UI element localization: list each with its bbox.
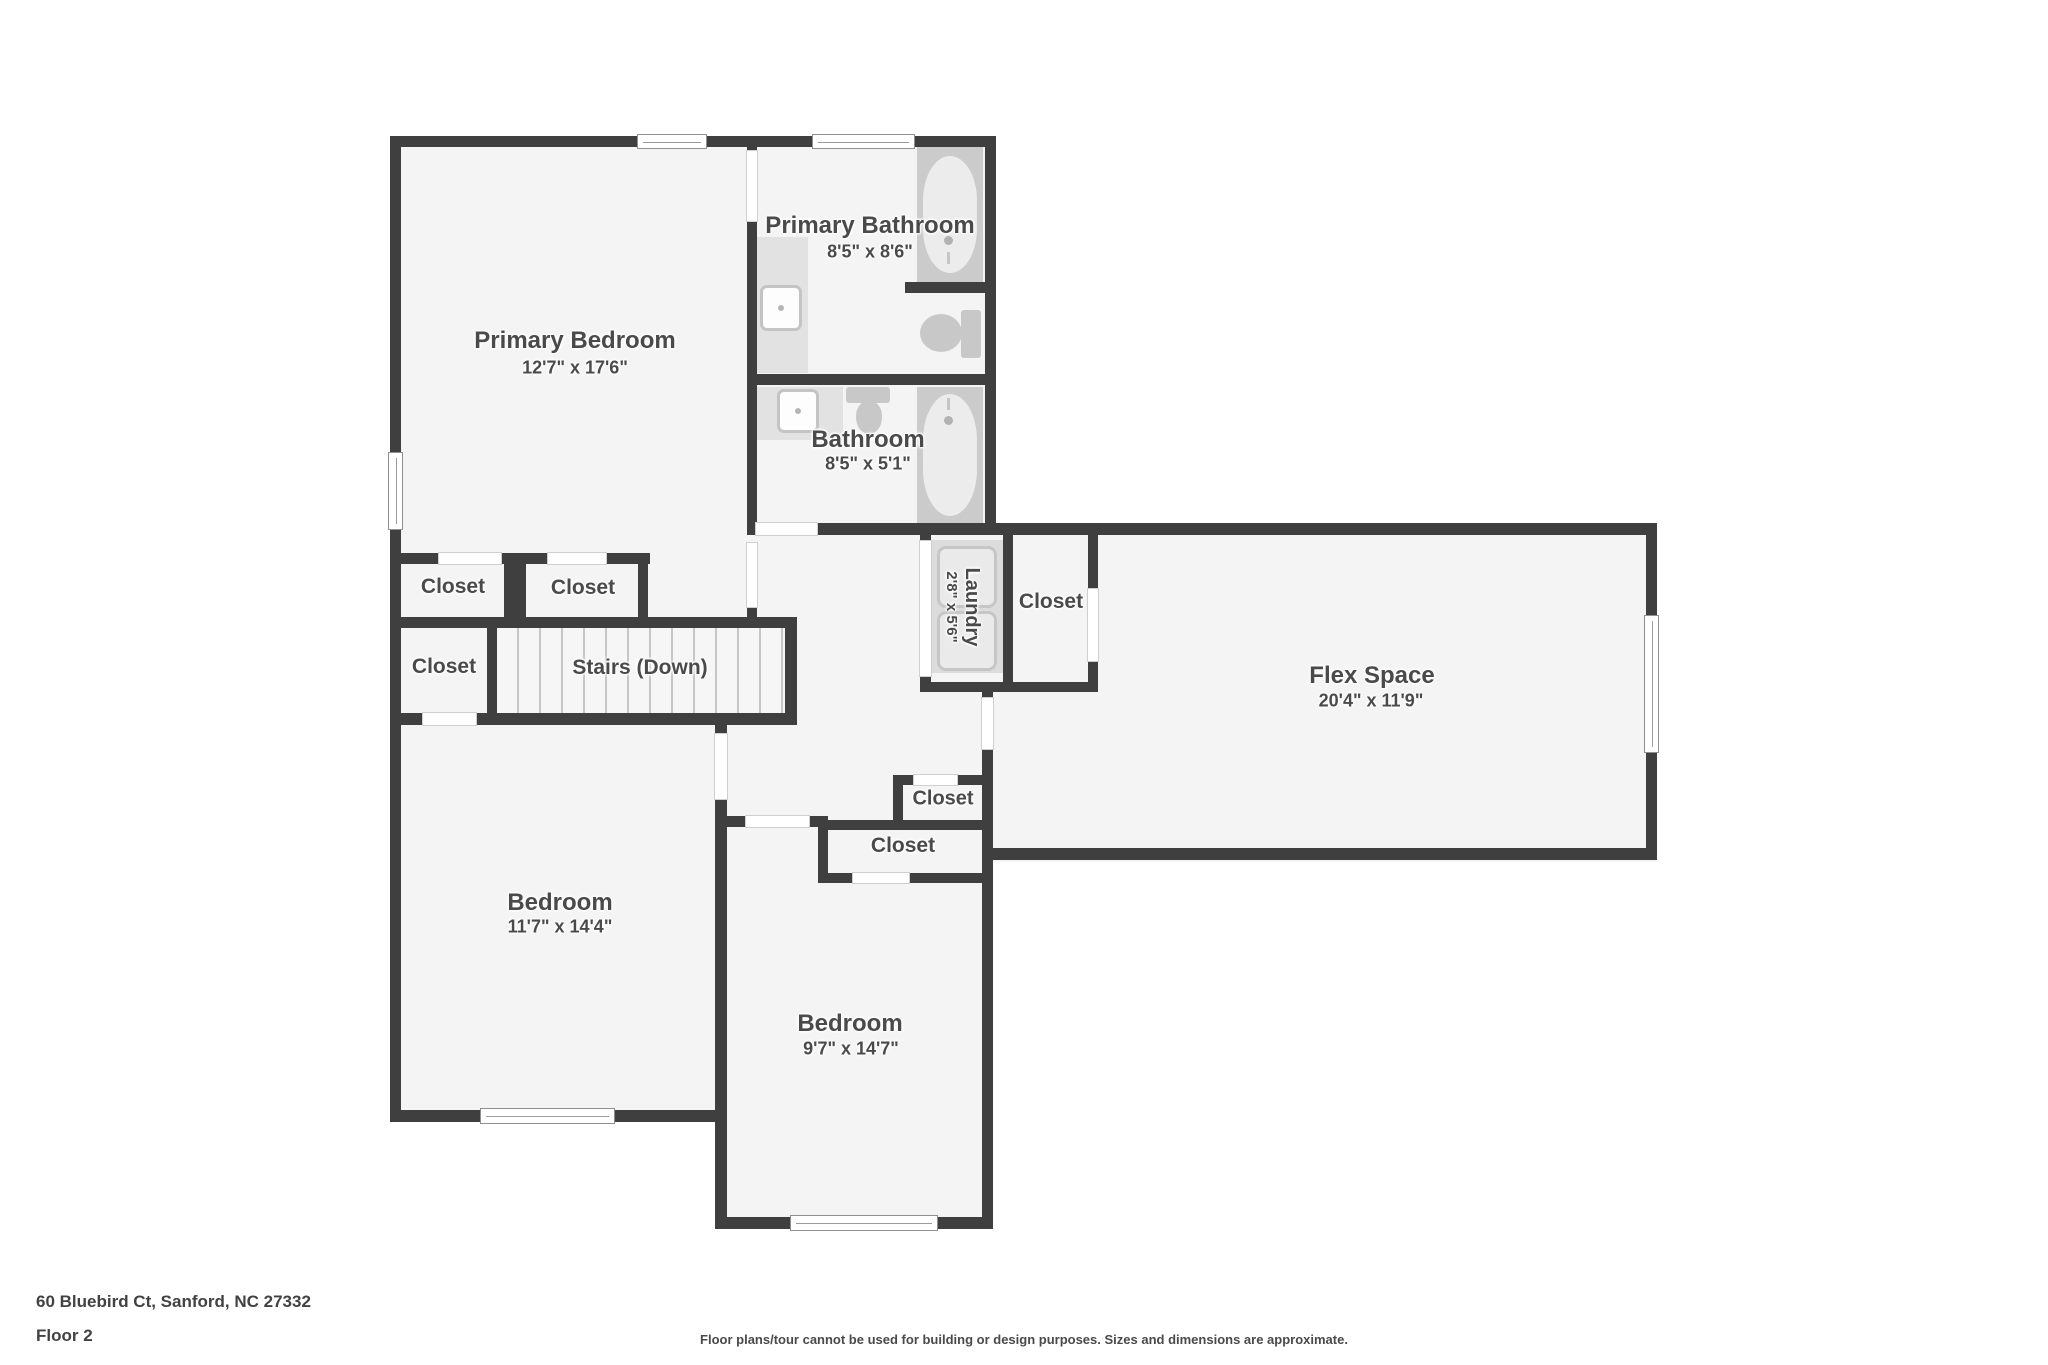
door-opening xyxy=(981,697,994,750)
toilet-icon xyxy=(961,310,981,358)
door-opening xyxy=(422,712,477,726)
window xyxy=(812,134,915,149)
wall xyxy=(747,608,757,620)
door-opening xyxy=(745,815,810,828)
wall xyxy=(818,816,828,883)
wall xyxy=(982,692,993,1229)
closet-label: Closet xyxy=(421,575,485,599)
room-label-bathroom: Bathroom xyxy=(811,426,924,454)
window xyxy=(637,134,707,149)
closet-label: Closet xyxy=(912,788,973,811)
door-opening xyxy=(755,522,818,536)
wall xyxy=(818,820,993,830)
room-label-primary-bedroom: Primary Bedroom xyxy=(474,327,675,355)
room-dims-laundry: 2'8" x 5'6" xyxy=(943,568,960,647)
disclaimer-text: Floor plans/tour cannot be used for buil… xyxy=(0,1332,2048,1347)
bathtub-drain xyxy=(944,416,953,425)
room-dims-bathroom: 8'5" x 5'1" xyxy=(825,454,911,475)
address-text: 60 Bluebird Ct, Sanford, NC 27332 xyxy=(36,1292,311,1312)
toilet-bowl xyxy=(920,314,962,352)
room-label-flex-space: Flex Space xyxy=(1309,662,1434,690)
wall xyxy=(785,617,797,725)
wall xyxy=(393,617,797,628)
wall xyxy=(1003,523,1013,692)
room-dims-bedroom-right: 9'7" x 14'7" xyxy=(803,1039,899,1060)
room-dims-flex-space: 20'4" x 11'9" xyxy=(1319,691,1424,712)
room-label-bedroom-right: Bedroom xyxy=(797,1010,902,1038)
room-dims-primary-bathroom: 8'5" x 8'6" xyxy=(827,242,913,263)
room-dims-primary-bedroom: 12'7" x 17'6" xyxy=(522,358,628,379)
sink-icon xyxy=(760,285,802,331)
room-label-bedroom-left: Bedroom xyxy=(507,889,612,917)
laundry-label-group: Laundry 2'8" x 5'6" xyxy=(943,568,983,647)
door-opening xyxy=(714,733,728,800)
window xyxy=(1644,615,1659,753)
room-label-laundry: Laundry xyxy=(960,568,983,647)
room-label-primary-bathroom: Primary Bathroom xyxy=(765,212,974,240)
closet-label: Closet xyxy=(412,655,476,679)
door-opening xyxy=(913,774,958,786)
door-opening xyxy=(746,542,758,608)
closet-label: Closet xyxy=(871,834,935,858)
door-opening xyxy=(1087,588,1099,662)
window xyxy=(480,1108,615,1124)
bathtub-basin xyxy=(923,394,977,516)
stairs-label: Stairs (Down) xyxy=(572,656,707,680)
window xyxy=(790,1215,938,1231)
bathtub-faucet xyxy=(947,398,950,410)
wall xyxy=(992,848,1657,860)
wall xyxy=(504,553,526,628)
wall xyxy=(747,374,996,385)
wall xyxy=(390,136,401,1122)
door-opening xyxy=(746,150,758,222)
wall xyxy=(893,775,903,830)
wall xyxy=(747,523,1657,535)
door-opening xyxy=(919,540,932,677)
floor-plan: Primary Bedroom 12'7" x 17'6" Primary Ba… xyxy=(0,0,2048,1365)
window xyxy=(388,452,403,530)
door-opening xyxy=(438,552,502,565)
room-dims-bedroom-left: 11'7" x 14'4" xyxy=(508,917,613,938)
wall xyxy=(985,136,996,535)
bathtub-faucet xyxy=(947,252,950,264)
wall xyxy=(905,282,996,293)
door-opening xyxy=(852,872,910,884)
door-opening xyxy=(547,552,607,565)
closet-label: Closet xyxy=(551,576,615,600)
room-fill-flex-block xyxy=(920,523,1657,862)
closet-label: Closet xyxy=(1019,590,1083,614)
wall xyxy=(638,553,648,628)
wall xyxy=(487,617,497,725)
